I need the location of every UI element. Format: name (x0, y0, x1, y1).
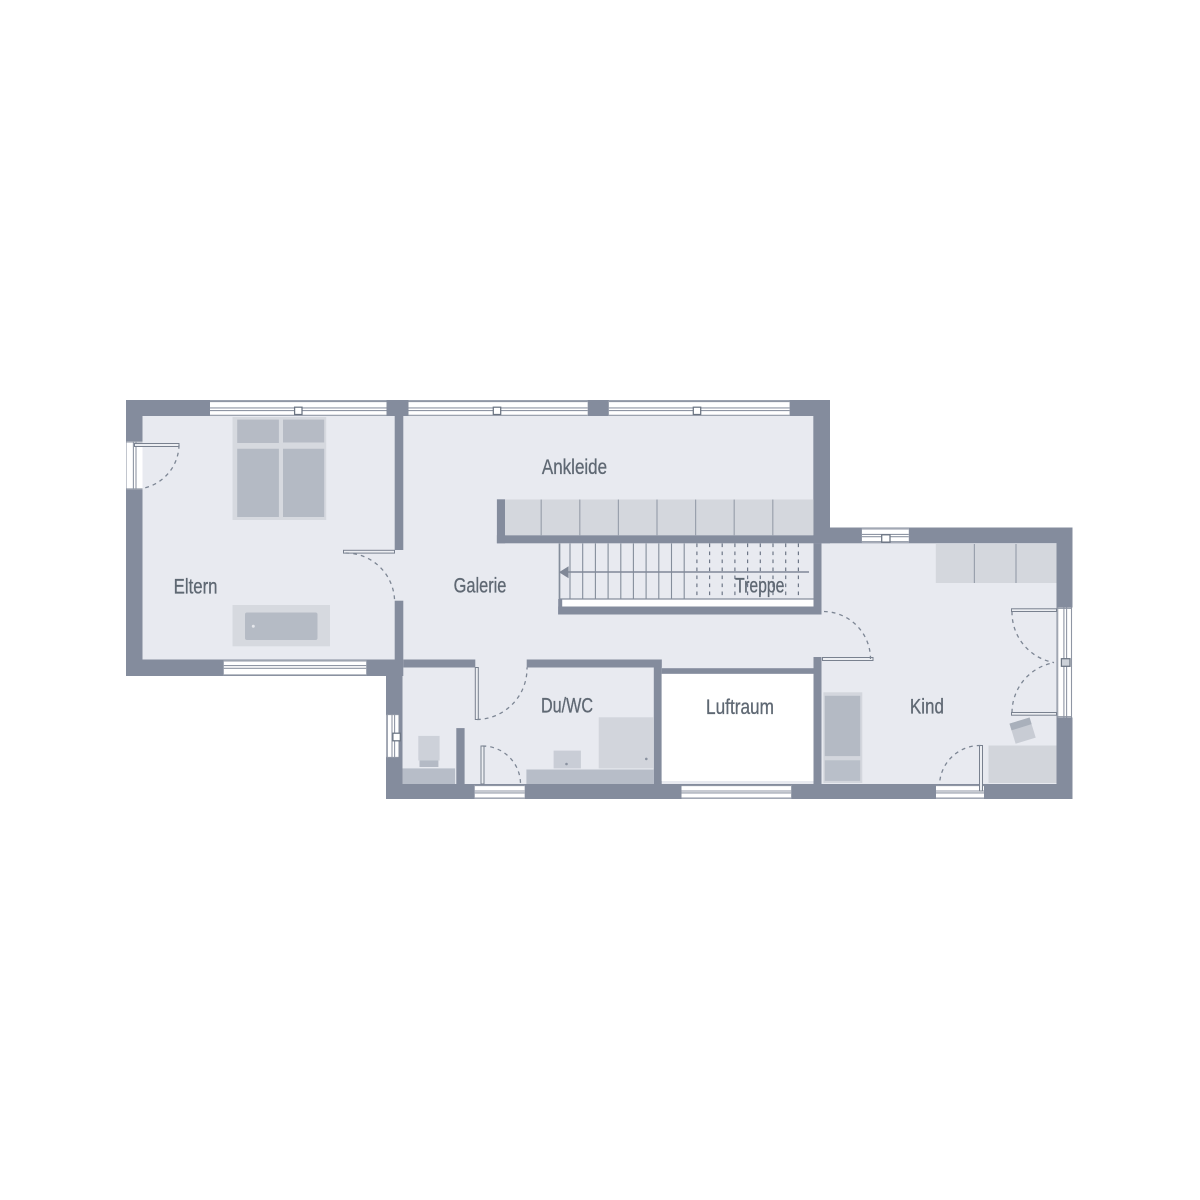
svg-text:Luftraum: Luftraum (706, 697, 774, 720)
svg-text:Kind: Kind (910, 696, 944, 719)
svg-text:Eltern: Eltern (174, 576, 218, 599)
svg-text:Du/WC: Du/WC (541, 693, 593, 717)
svg-text:Ankleide: Ankleide (542, 456, 607, 479)
svg-text:Galerie: Galerie (454, 574, 507, 597)
svg-text:Treppe: Treppe (735, 573, 784, 597)
